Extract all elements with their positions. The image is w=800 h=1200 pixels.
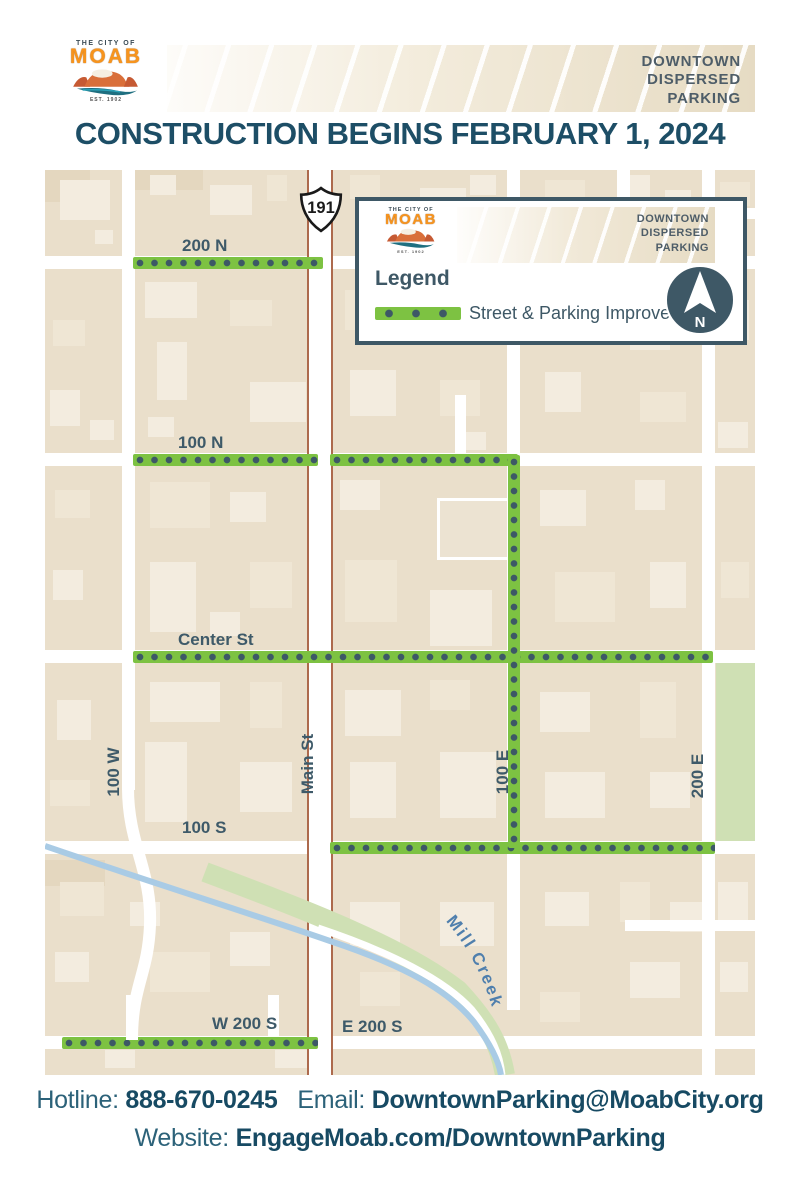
building [635,480,665,510]
building [545,372,581,412]
building [53,570,83,600]
building [360,972,400,1006]
hotline-label: Hotline: [36,1086,118,1114]
building [440,752,496,818]
street-label-w200s: W 200 S [212,1014,277,1034]
building [55,952,89,982]
building [640,682,676,738]
legend-heading: Legend [375,267,450,291]
building [340,480,380,510]
building [250,382,306,422]
building [430,590,492,646]
building [95,230,113,244]
street-label-100n: 100 N [178,433,223,453]
red-rocks-river-icon [385,227,437,249]
building [150,482,210,528]
building [350,762,396,818]
building [150,952,210,992]
building [440,902,494,946]
building [545,892,589,926]
building [157,342,187,400]
road-main-street [307,170,333,1075]
road-segment [625,920,755,931]
building [720,962,748,992]
street-label-200e: 200 E [688,736,708,816]
improvement-line [330,842,715,854]
street-label-main: Main St [298,724,318,804]
building [718,882,748,922]
building [130,902,160,926]
building [90,420,114,440]
building [650,772,690,808]
building [145,742,187,822]
program-line: DOWNTOWN [642,53,741,71]
building [630,962,680,998]
street-label-200n: 200 N [182,236,227,256]
contact-line-1: Hotline: 888-670-0245 Email: DowntownPar… [0,1082,800,1120]
street-label-100e: 100 E [493,732,513,812]
building-outlined [437,498,515,560]
building [345,690,401,736]
building [620,882,650,922]
improvement-line [330,454,518,466]
building [250,562,292,608]
building [721,562,749,598]
route-number: 191 [307,199,335,217]
building [650,562,686,608]
building [148,417,174,437]
building [150,562,196,632]
building [150,175,176,195]
legend-program-title: DOWNTOWN DISPERSED PARKING [637,212,709,255]
building [145,282,197,318]
road-segment [330,1036,755,1049]
building [50,390,80,426]
street-label-100w: 100 W [104,732,124,812]
page-title: CONSTRUCTION BEGINS FEBRUARY 1, 2024 [0,116,800,152]
program-line: DOWNTOWN [637,212,709,226]
building [470,175,496,195]
building [350,175,380,199]
legend-item: Street & Parking Improvement [375,303,710,324]
building [57,700,91,740]
building [275,1050,311,1068]
program-title: DOWNTOWN DISPERSED PARKING [642,53,741,108]
program-line: DISPERSED [637,226,709,240]
building [540,992,580,1022]
logo-wordmark: MOAB [385,213,437,227]
logo-established: EST. 1902 [397,249,424,254]
building [230,932,270,966]
building [150,682,220,722]
building [640,392,686,422]
header-banner: DOWNTOWN DISPERSED PARKING [145,45,755,112]
contact-footer: Hotline: 888-670-0245 Email: DowntownPar… [0,1082,800,1157]
contact-line-2: Website: EngageMoab.com/DowntownParking [0,1120,800,1158]
building [555,572,615,622]
building [267,175,287,201]
building [540,692,590,732]
building [230,300,272,326]
building [105,1050,135,1068]
building [345,560,397,622]
program-line: PARKING [642,90,741,108]
logo-established: EST. 1902 [90,97,122,103]
building [718,422,748,448]
park-area [716,662,755,842]
legend-banner: DOWNTOWN DISPERSED PARKING [457,207,715,263]
street-label-center: Center St [178,630,254,650]
program-line: PARKING [637,241,709,255]
hotline-number: 888-670-0245 [125,1086,277,1114]
building [430,680,470,710]
building [540,490,586,526]
building [60,180,110,220]
us-191-route-shield: 191 [299,186,343,233]
flyer-page: DOWNTOWN DISPERSED PARKING THE CITY OF M… [0,0,800,1200]
building [230,492,266,522]
road-segment [455,395,466,457]
red-rocks-river-icon [70,67,142,97]
building [55,490,90,518]
building [50,780,90,806]
building [350,370,396,416]
improvement-line [133,651,713,663]
building [60,882,104,916]
website-label: Website: [135,1124,229,1152]
improvement-line [62,1037,318,1049]
downtown-map: Mill Creek 200 N 100 N Center St 100 S W… [45,170,755,1075]
street-label-100s: 100 S [182,818,226,838]
north-letter: N [695,314,706,331]
building [545,772,605,818]
street-label-e200s: E 200 S [342,1017,403,1037]
moab-city-logo-small: THE CITY OF MOAB EST. 1902 [365,207,457,259]
building [350,902,400,946]
website-url: EngageMoab.com/DowntownParking [236,1124,666,1152]
email-label: Email: [297,1086,365,1114]
moab-city-logo: THE CITY OF MOAB EST. 1902 [45,40,167,114]
north-arrow: N [664,264,736,336]
building [250,682,282,728]
building [53,320,85,346]
creek-trail [318,928,502,1075]
logo-wordmark: MOAB [70,47,142,67]
improvement-line-swatch [375,307,461,320]
email-address: DowntownParking@MoabCity.org [372,1086,764,1114]
program-line: DISPERSED [642,71,741,89]
building [240,762,292,812]
building [210,185,252,215]
improvement-line [133,257,323,269]
improvement-line [133,454,318,466]
